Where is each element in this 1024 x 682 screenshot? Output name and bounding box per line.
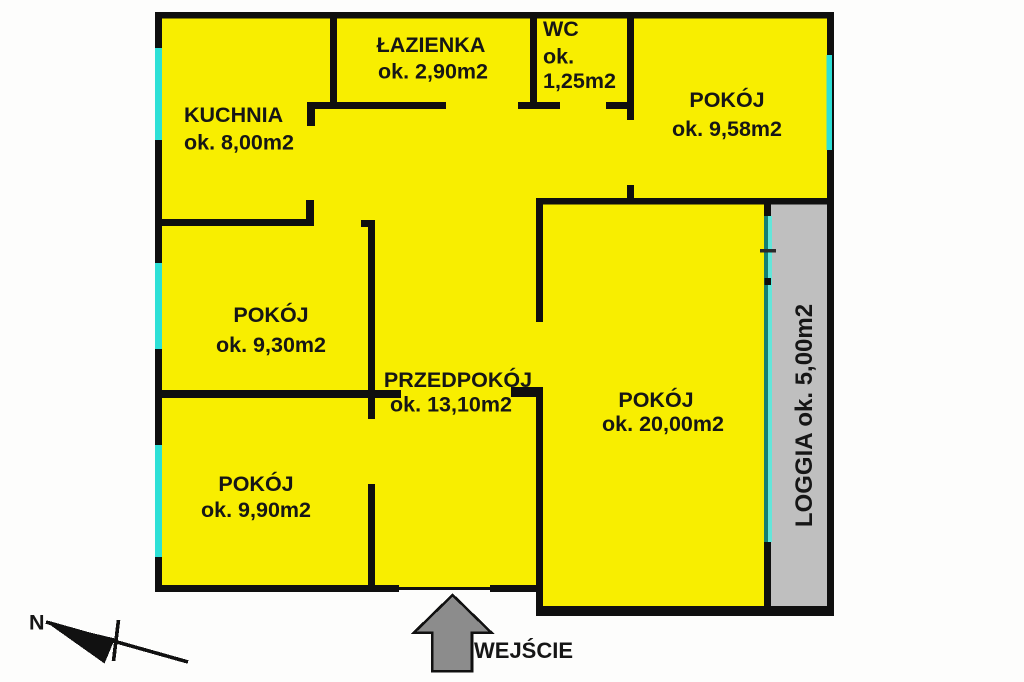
svg-text:LOGGIA ok. 5,00m2: LOGGIA ok. 5,00m2 (791, 304, 818, 527)
svg-text:ok. 9,90m2: ok. 9,90m2 (201, 498, 311, 522)
svg-text:POKÓJ: POKÓJ (218, 471, 293, 496)
svg-text:POKÓJ: POKÓJ (233, 302, 308, 327)
svg-text:POKÓJ: POKÓJ (689, 87, 764, 112)
svg-text:WEJŚCIE: WEJŚCIE (474, 638, 573, 663)
svg-text:ok.: ok. (543, 45, 574, 69)
svg-text:ok. 9,30m2: ok. 9,30m2 (216, 333, 326, 357)
svg-text:KUCHNIA: KUCHNIA (184, 103, 283, 127)
svg-text:N: N (29, 611, 45, 635)
svg-text:ok. 8,00m2: ok. 8,00m2 (184, 131, 294, 155)
svg-text:WC: WC (543, 17, 579, 41)
svg-text:ok. 13,10m2: ok. 13,10m2 (390, 393, 512, 417)
svg-text:ok. 20,00m2: ok. 20,00m2 (602, 412, 724, 436)
svg-text:ok. 9,58m2: ok. 9,58m2 (672, 117, 782, 141)
svg-text:ŁAZIENKA: ŁAZIENKA (377, 33, 486, 57)
svg-text:PRZEDPOKÓJ: PRZEDPOKÓJ (384, 367, 532, 392)
svg-text:ok. 2,90m2: ok. 2,90m2 (378, 60, 488, 84)
svg-text:1,25m2: 1,25m2 (543, 69, 616, 93)
svg-text:POKÓJ: POKÓJ (618, 387, 693, 412)
